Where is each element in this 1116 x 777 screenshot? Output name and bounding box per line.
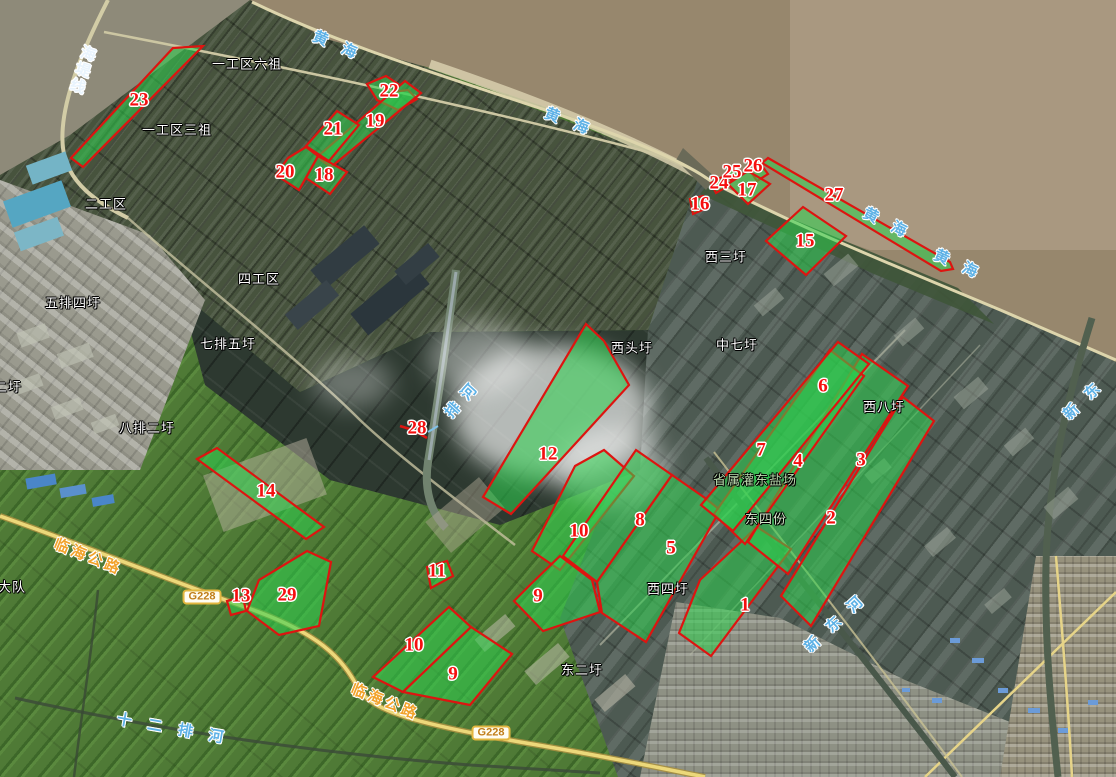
parcel-marker-8[interactable]: 8 <box>635 511 645 530</box>
parcel-marker-13[interactable]: 13 <box>232 587 251 606</box>
parcel-marker-16[interactable]: 16 <box>691 195 710 214</box>
parcel-marker-20[interactable]: 20 <box>276 163 295 182</box>
parcel-marker-5[interactable]: 5 <box>666 539 676 558</box>
water-label-8: 十二排河 <box>116 712 241 748</box>
road-label-0: 临海公路 <box>52 537 124 578</box>
place-label-12: 省属灌东盐场 <box>713 474 797 487</box>
place-label-14: 西四圩 <box>647 583 689 596</box>
parcel-marker-19[interactable]: 19 <box>366 112 385 131</box>
place-label-6: 八排二圩 <box>119 422 175 435</box>
water-label-6: 新东河 <box>802 585 876 655</box>
parcel-marker-1[interactable]: 1 <box>740 596 750 615</box>
water-label-7: 新东 <box>1061 371 1113 422</box>
place-label-9: 西头圩 <box>611 342 653 355</box>
water-label-3: 黄海 <box>861 206 923 247</box>
parcel-marker-6[interactable]: 6 <box>818 377 828 396</box>
parcel-marker-27[interactable]: 27 <box>825 186 844 205</box>
place-label-13: 东四份 <box>745 513 787 526</box>
parcel-marker-10-b[interactable]: 10 <box>405 636 424 655</box>
parcel-marker-28[interactable]: 28 <box>408 419 427 438</box>
road-badge-g228-0: G228 <box>183 590 222 605</box>
place-label-4: 五排四圩 <box>45 297 101 310</box>
parcel-marker-21[interactable]: 21 <box>324 120 343 139</box>
place-label-5: 七排五圩 <box>200 338 256 351</box>
parcel-marker-26[interactable]: 26 <box>744 157 763 176</box>
parcel-marker-17[interactable]: 17 <box>738 181 757 200</box>
parcel-marker-7[interactable]: 7 <box>756 441 766 460</box>
parcel-marker-12[interactable]: 12 <box>539 445 558 464</box>
place-label-3: 四工区 <box>238 273 280 286</box>
water-label-4: 黄海 <box>932 248 995 287</box>
parcel-marker-14[interactable]: 14 <box>257 482 276 501</box>
water-label-1: 黄海 <box>311 29 374 67</box>
place-label-15: 东二圩 <box>561 664 603 677</box>
parcel-marker-15[interactable]: 15 <box>796 232 815 251</box>
place-label-16: 大队 <box>0 581 26 594</box>
label-layer: 1234567899101011121314151617181920212223… <box>0 0 1116 777</box>
parcel-marker-25[interactable]: 25 <box>723 163 742 182</box>
road-badge-g228-1: G228 <box>472 726 511 741</box>
parcel-marker-2[interactable]: 2 <box>826 509 836 528</box>
water-label-5: 排河 <box>442 375 485 421</box>
parcel-marker-9[interactable]: 9 <box>533 587 543 606</box>
parcel-marker-23[interactable]: 23 <box>130 91 149 110</box>
parcel-marker-11[interactable]: 11 <box>428 562 446 581</box>
place-label-11: 西八圩 <box>863 401 905 414</box>
parcel-marker-22[interactable]: 22 <box>380 82 399 101</box>
place-label-10: 中七圩 <box>716 339 758 352</box>
parcel-marker-9-b[interactable]: 9 <box>448 665 458 684</box>
place-label-7: 二圩 <box>0 381 22 394</box>
place-label-8: 西三圩 <box>705 251 747 264</box>
water-label-0: 海堤线 <box>67 43 97 96</box>
parcel-marker-18[interactable]: 18 <box>315 166 334 185</box>
place-label-2: 二工区 <box>85 198 127 211</box>
parcel-marker-4[interactable]: 4 <box>793 452 803 471</box>
road-label-1: 临海公路 <box>349 682 421 723</box>
parcel-marker-29[interactable]: 29 <box>278 586 297 605</box>
place-label-1: 一工区三祖 <box>142 124 212 137</box>
water-label-2: 黄海 <box>542 106 605 142</box>
parcel-marker-10[interactable]: 10 <box>570 522 589 541</box>
satellite-map: 1234567899101011121314151617181920212223… <box>0 0 1116 777</box>
place-label-0: 一工区六祖 <box>212 58 282 71</box>
parcel-marker-3[interactable]: 3 <box>856 451 866 470</box>
